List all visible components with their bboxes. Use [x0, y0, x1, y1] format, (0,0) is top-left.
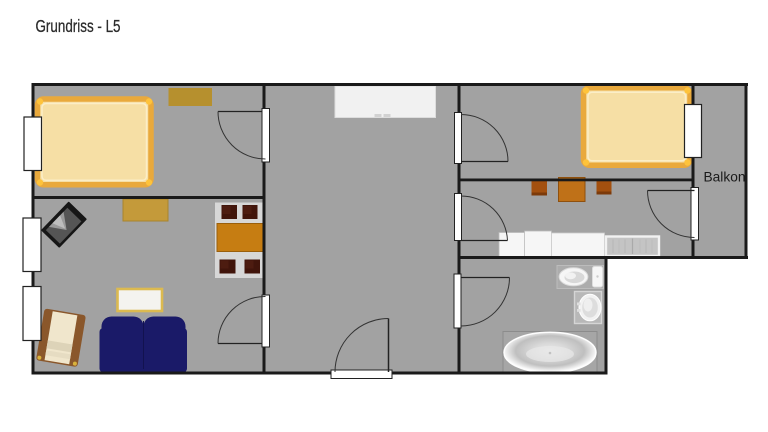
svg-text:Grundriss - L5: Grundriss - L5 [36, 16, 121, 36]
svg-text:Balkon: Balkon [704, 170, 746, 185]
